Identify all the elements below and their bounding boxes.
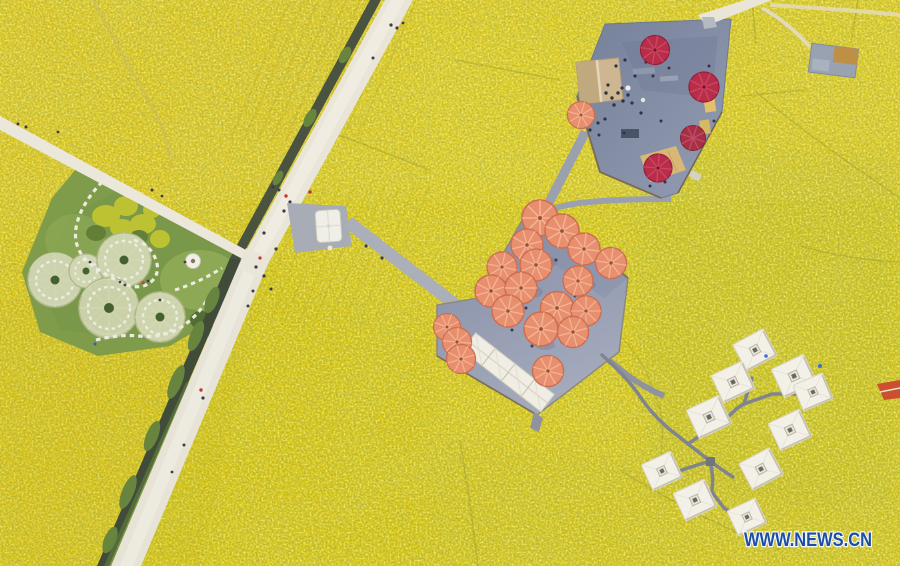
svg-text:WWW.NEWS.CN: WWW.NEWS.CN (744, 530, 872, 551)
